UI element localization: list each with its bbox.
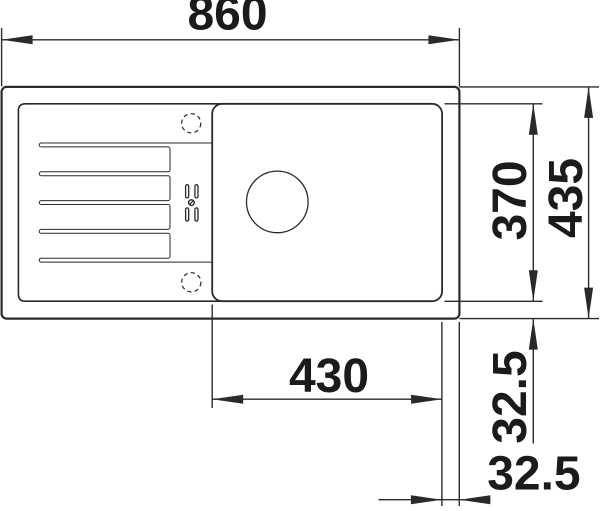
svg-text:430: 430	[289, 350, 369, 403]
svg-text:860: 860	[187, 0, 267, 41]
svg-text:32.5: 32.5	[487, 448, 580, 501]
svg-text:32.5: 32.5	[484, 350, 537, 443]
svg-text:435: 435	[540, 158, 593, 238]
svg-text:370: 370	[484, 160, 537, 240]
